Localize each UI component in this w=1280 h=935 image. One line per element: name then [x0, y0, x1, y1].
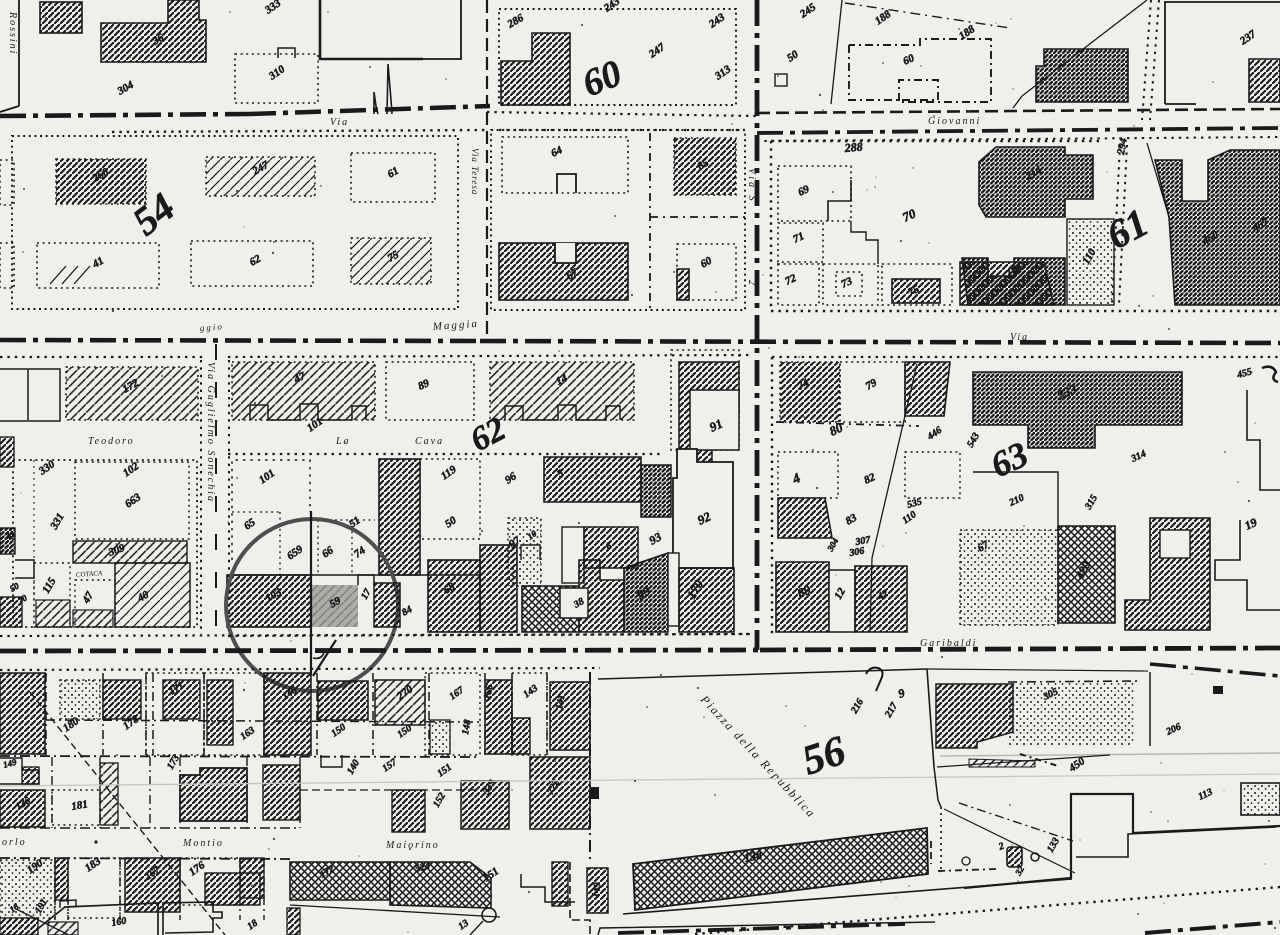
svg-text:Cava: Cava [415, 436, 444, 447]
svg-text:Teodoro: Teodoro [88, 436, 135, 447]
svg-text:Giovanni: Giovanni [928, 116, 981, 127]
svg-text:Via: Via [1010, 332, 1029, 343]
svg-text:ggio: ggio [199, 321, 224, 333]
svg-text:288: 288 [843, 139, 863, 155]
svg-text:orlo: orlo [2, 837, 27, 848]
svg-text:La: La [335, 436, 351, 447]
svg-text:2: 2 [746, 280, 757, 288]
svg-text:Via S: Via S [746, 168, 757, 204]
svg-text:Garibaldi: Garibaldi [920, 638, 977, 649]
svg-text:Via Guglielmo Sonechia: Via Guglielmo Sonechia [205, 362, 216, 503]
svg-text:Montio: Montio [182, 838, 224, 849]
svg-text:Maiorino: Maiorino [385, 840, 440, 851]
svg-text:Via: Via [330, 117, 349, 128]
svg-text:Rossini: Rossini [7, 11, 18, 55]
svg-text:Via Teresa: Via Teresa [470, 148, 480, 195]
